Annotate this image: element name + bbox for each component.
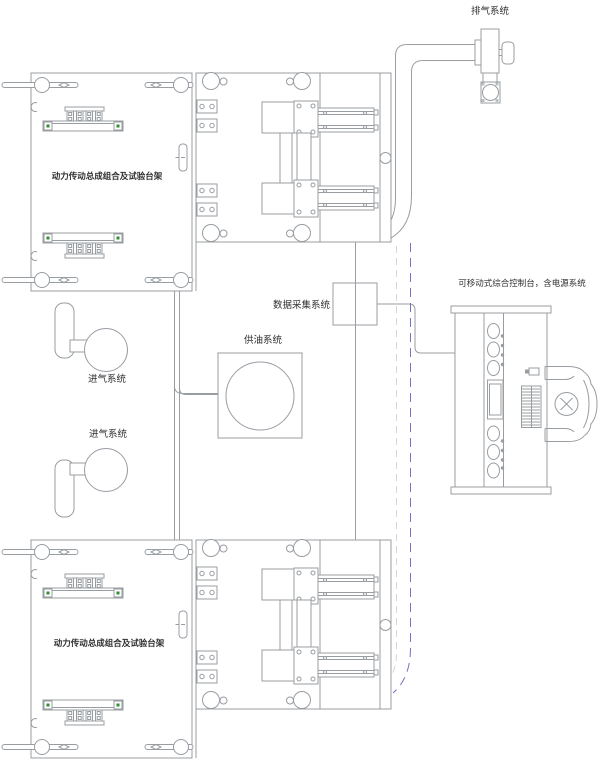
label-oil-supply: 供油系统: [240, 336, 286, 346]
oil-pipe: [175, 291, 219, 540]
control-console-device: [451, 306, 597, 494]
exhaust-system-device: [475, 29, 514, 103]
label-control-console: 可移动式综合控制台，含电源系统: [452, 280, 592, 289]
label-intake-system-top: 进气系统: [84, 375, 130, 385]
patent-figure: 排气系统 动力传动总成组合及试验台架 动力传动总成组合及试验台架 数据采集系统 …: [0, 0, 600, 766]
oil-supply-device: [218, 353, 302, 438]
intake-system-bottom-device: [55, 449, 128, 518]
operator-figure: [545, 367, 597, 442]
signal-line-to-console: [377, 304, 455, 353]
label-exhaust-system: 排气系统: [467, 7, 513, 17]
label-test-bench-top: 动力传动总成组合及试验台架: [50, 173, 164, 182]
label-test-bench-bottom: 动力传动总成组合及试验台架: [52, 640, 166, 649]
label-data-acquisition: 数据采集系统: [272, 301, 330, 311]
intake-blower-icon: [85, 329, 128, 372]
exhaust-fan-icon: [483, 85, 499, 101]
intake-system-top-device: [55, 303, 128, 372]
intake-blower-icon: [85, 449, 128, 492]
exhaust-pipe: [381, 45, 477, 239]
label-intake-system-bottom: 进气系统: [85, 430, 131, 440]
